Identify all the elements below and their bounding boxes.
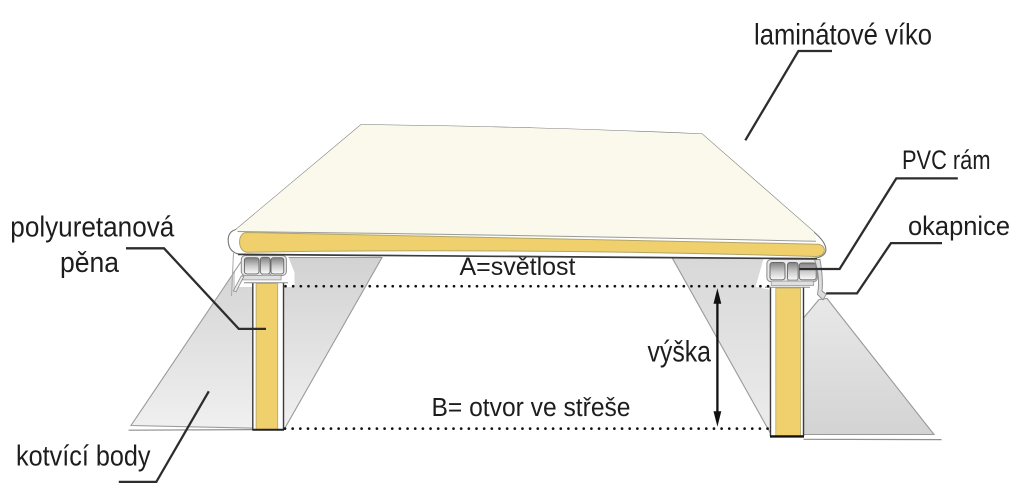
svg-text:PVC rám: PVC rám xyxy=(902,145,991,175)
svg-text:A=světlost: A=světlost xyxy=(460,253,576,281)
svg-text:pěna: pěna xyxy=(60,247,120,279)
svg-text:polyuretanová: polyuretanová xyxy=(10,212,175,244)
svg-text:laminátové víko: laminátové víko xyxy=(754,19,932,52)
svg-text:B= otvor ve střeše: B= otvor ve střeše xyxy=(432,394,631,422)
svg-text:výška: výška xyxy=(648,336,712,369)
svg-text:kotvící body: kotvící body xyxy=(16,441,151,473)
svg-text:okapnice: okapnice xyxy=(908,211,1010,241)
